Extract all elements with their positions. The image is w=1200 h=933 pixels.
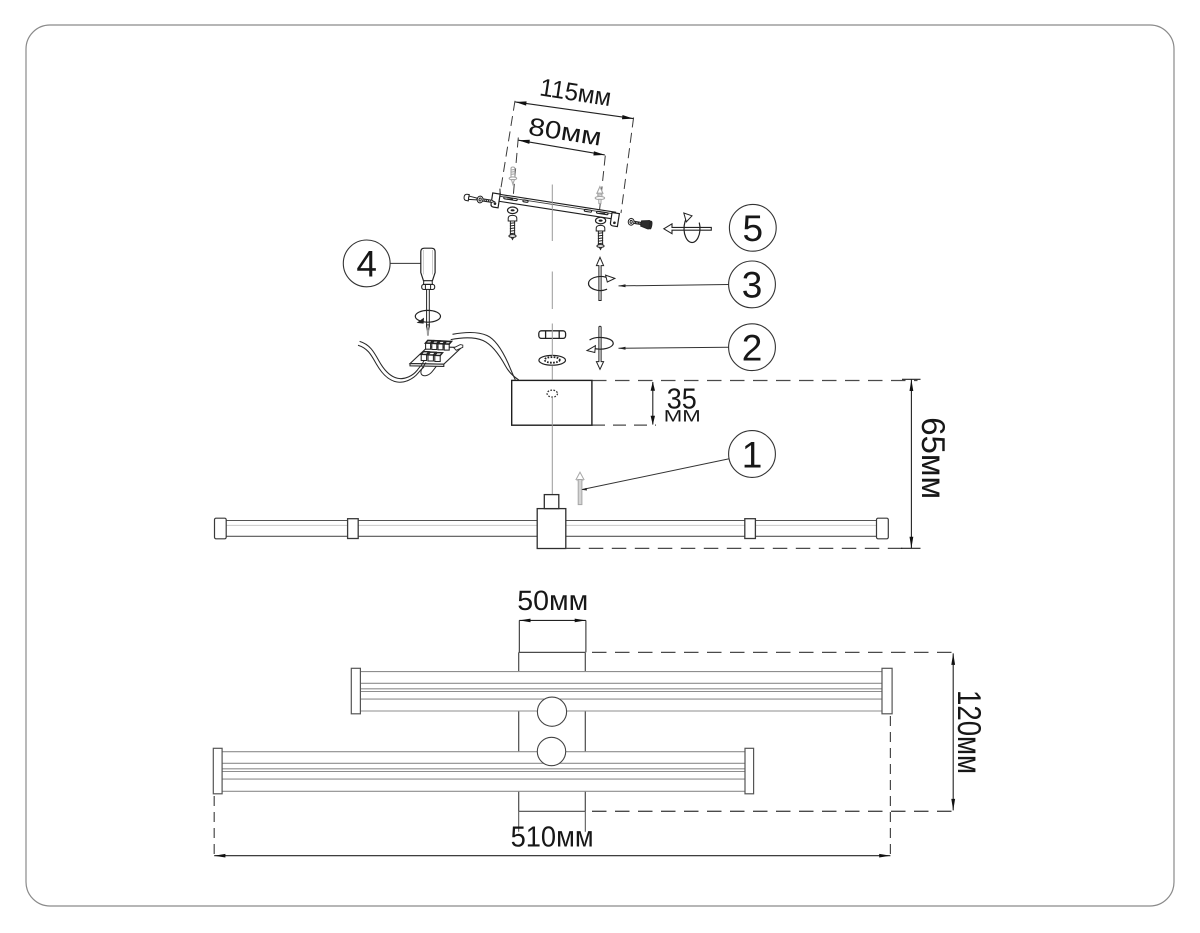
svg-text:3: 3 xyxy=(742,265,763,306)
svg-text:120мм: 120мм xyxy=(951,690,988,774)
svg-text:65мм: 65мм xyxy=(915,417,952,499)
svg-text:1: 1 xyxy=(742,434,763,475)
svg-text:510мм: 510мм xyxy=(511,822,594,854)
svg-text:5: 5 xyxy=(743,208,764,249)
svg-text:ММ: ММ xyxy=(664,406,701,425)
svg-text:4: 4 xyxy=(356,244,377,285)
svg-text:50мм: 50мм xyxy=(517,585,588,616)
svg-text:2: 2 xyxy=(742,328,763,369)
